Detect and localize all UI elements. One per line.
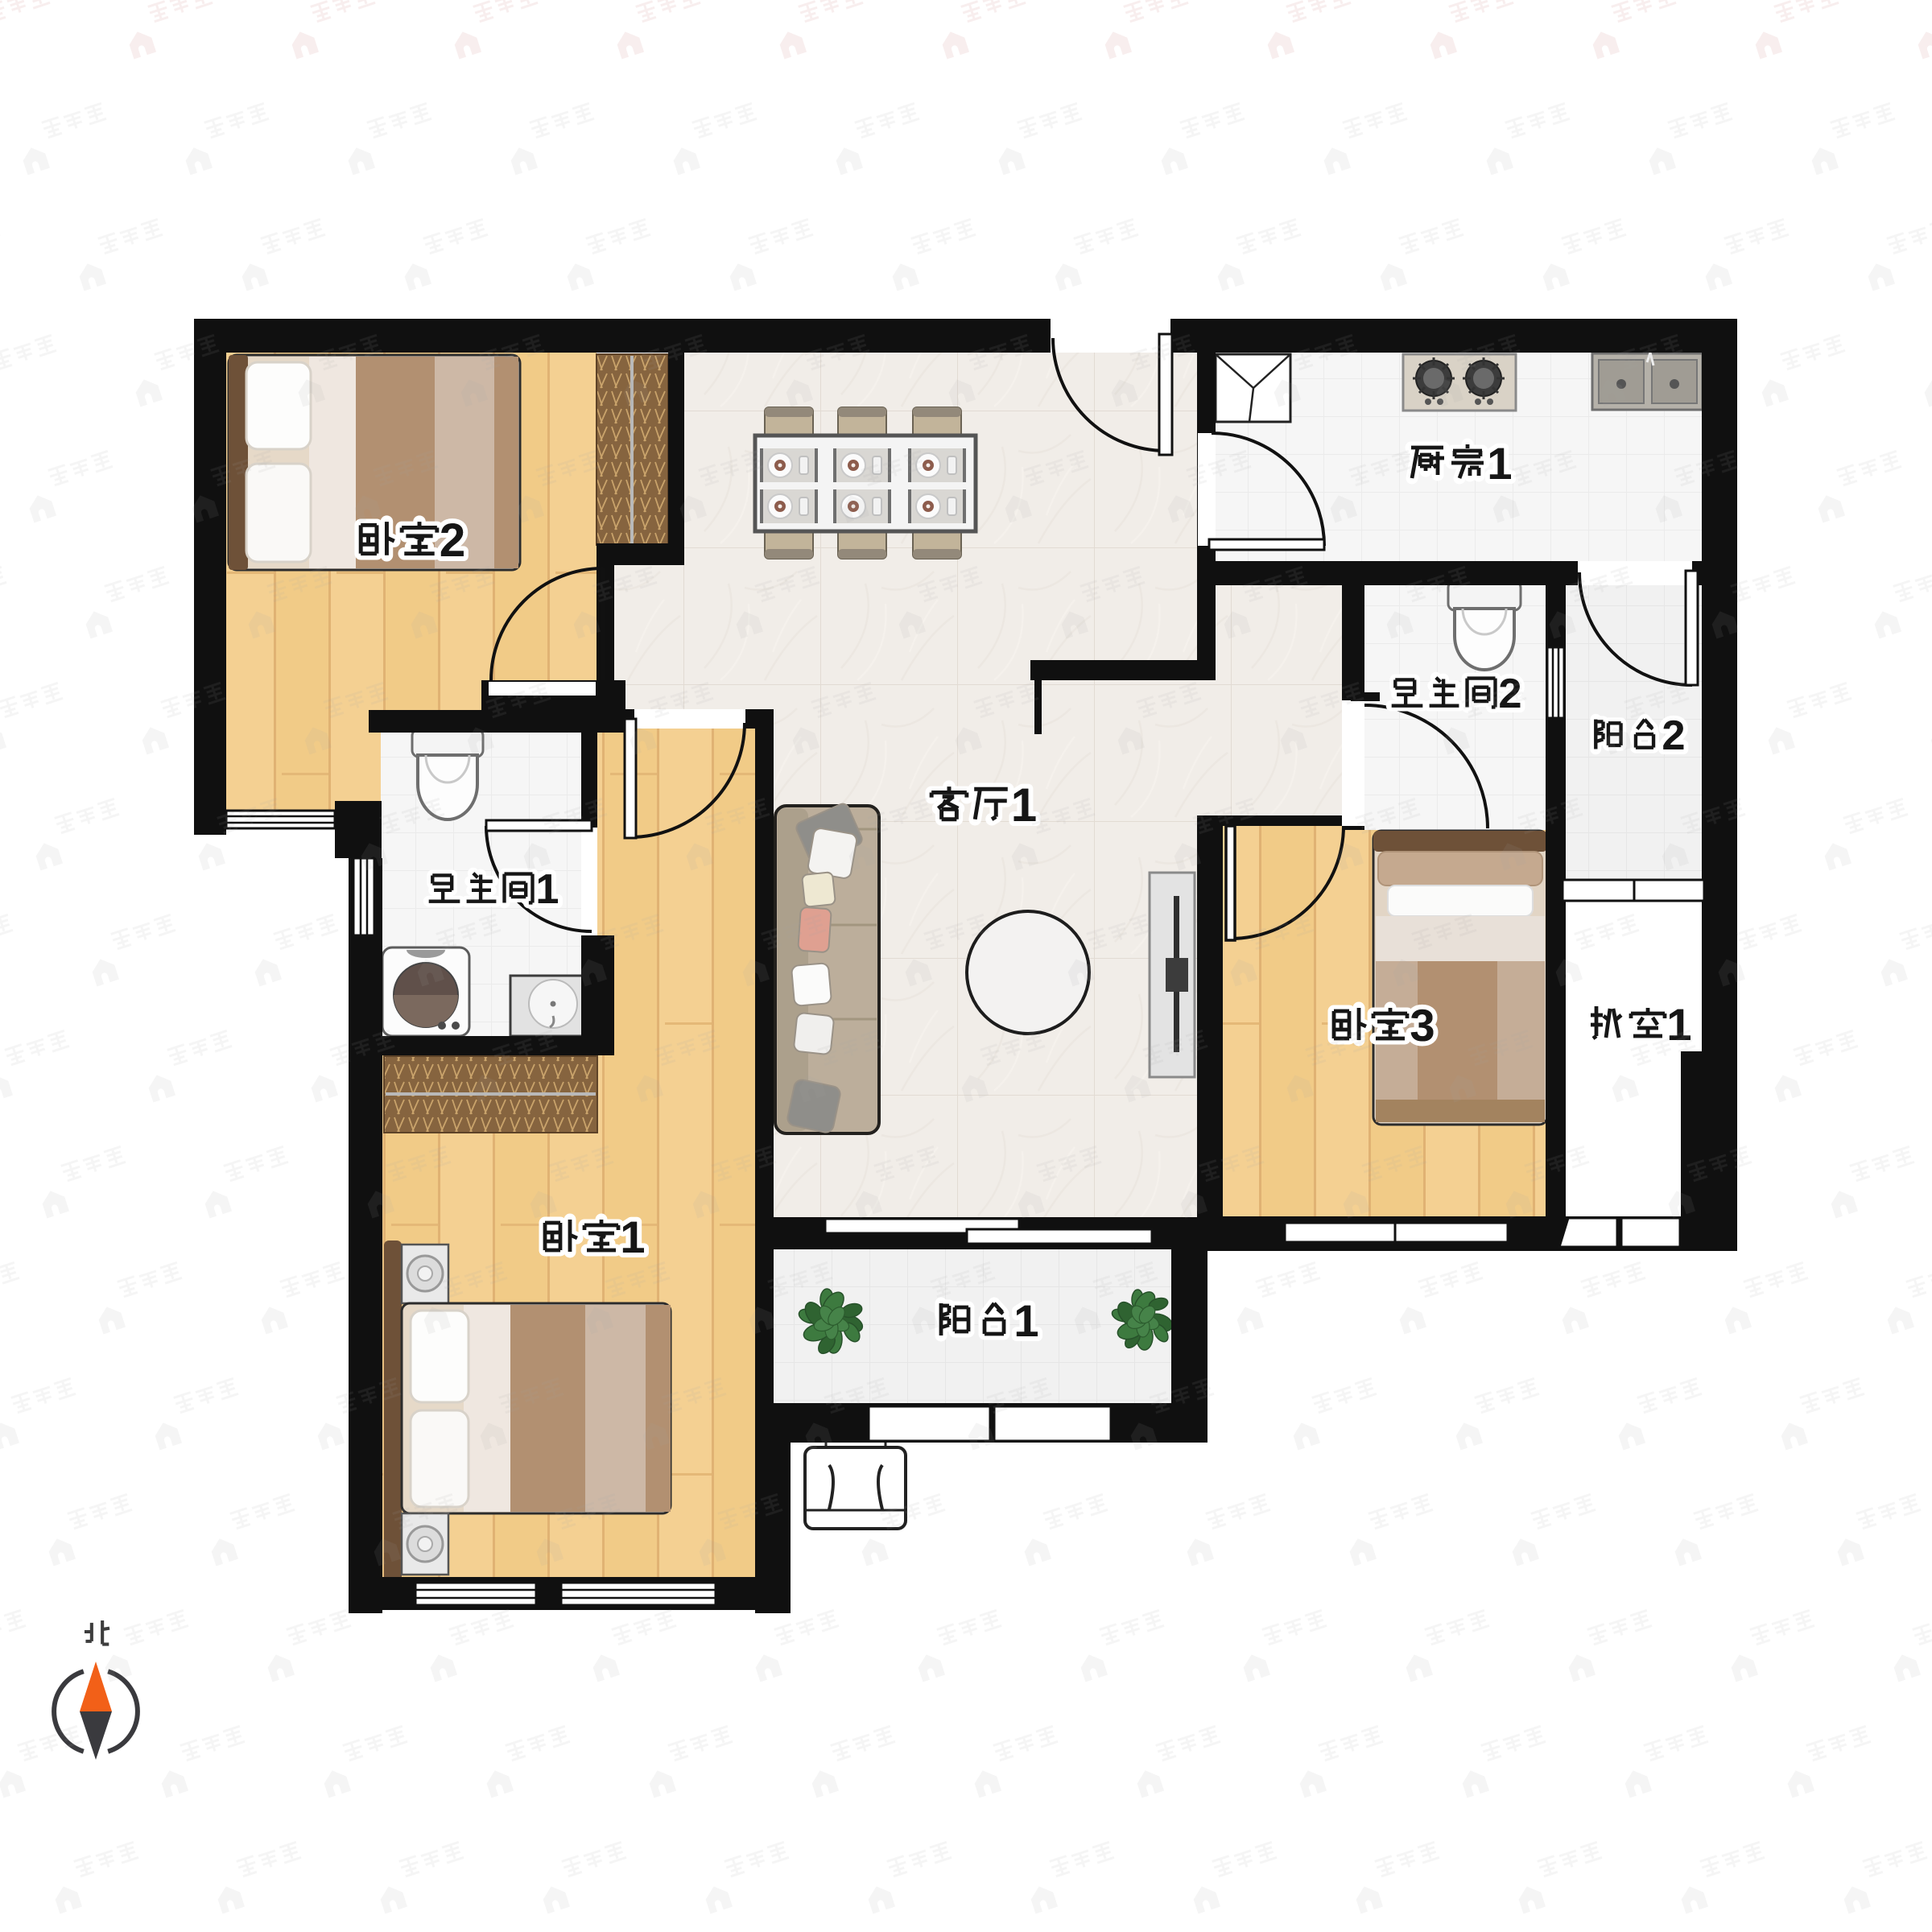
svg-text:2: 2 <box>1662 712 1686 759</box>
svg-text:1: 1 <box>620 1212 645 1262</box>
svg-text:1: 1 <box>1487 438 1512 489</box>
svg-text:2: 2 <box>440 514 465 567</box>
svg-text:1: 1 <box>536 866 559 913</box>
svg-text:1: 1 <box>1013 1295 1038 1346</box>
svg-text:3: 3 <box>1410 1000 1435 1051</box>
